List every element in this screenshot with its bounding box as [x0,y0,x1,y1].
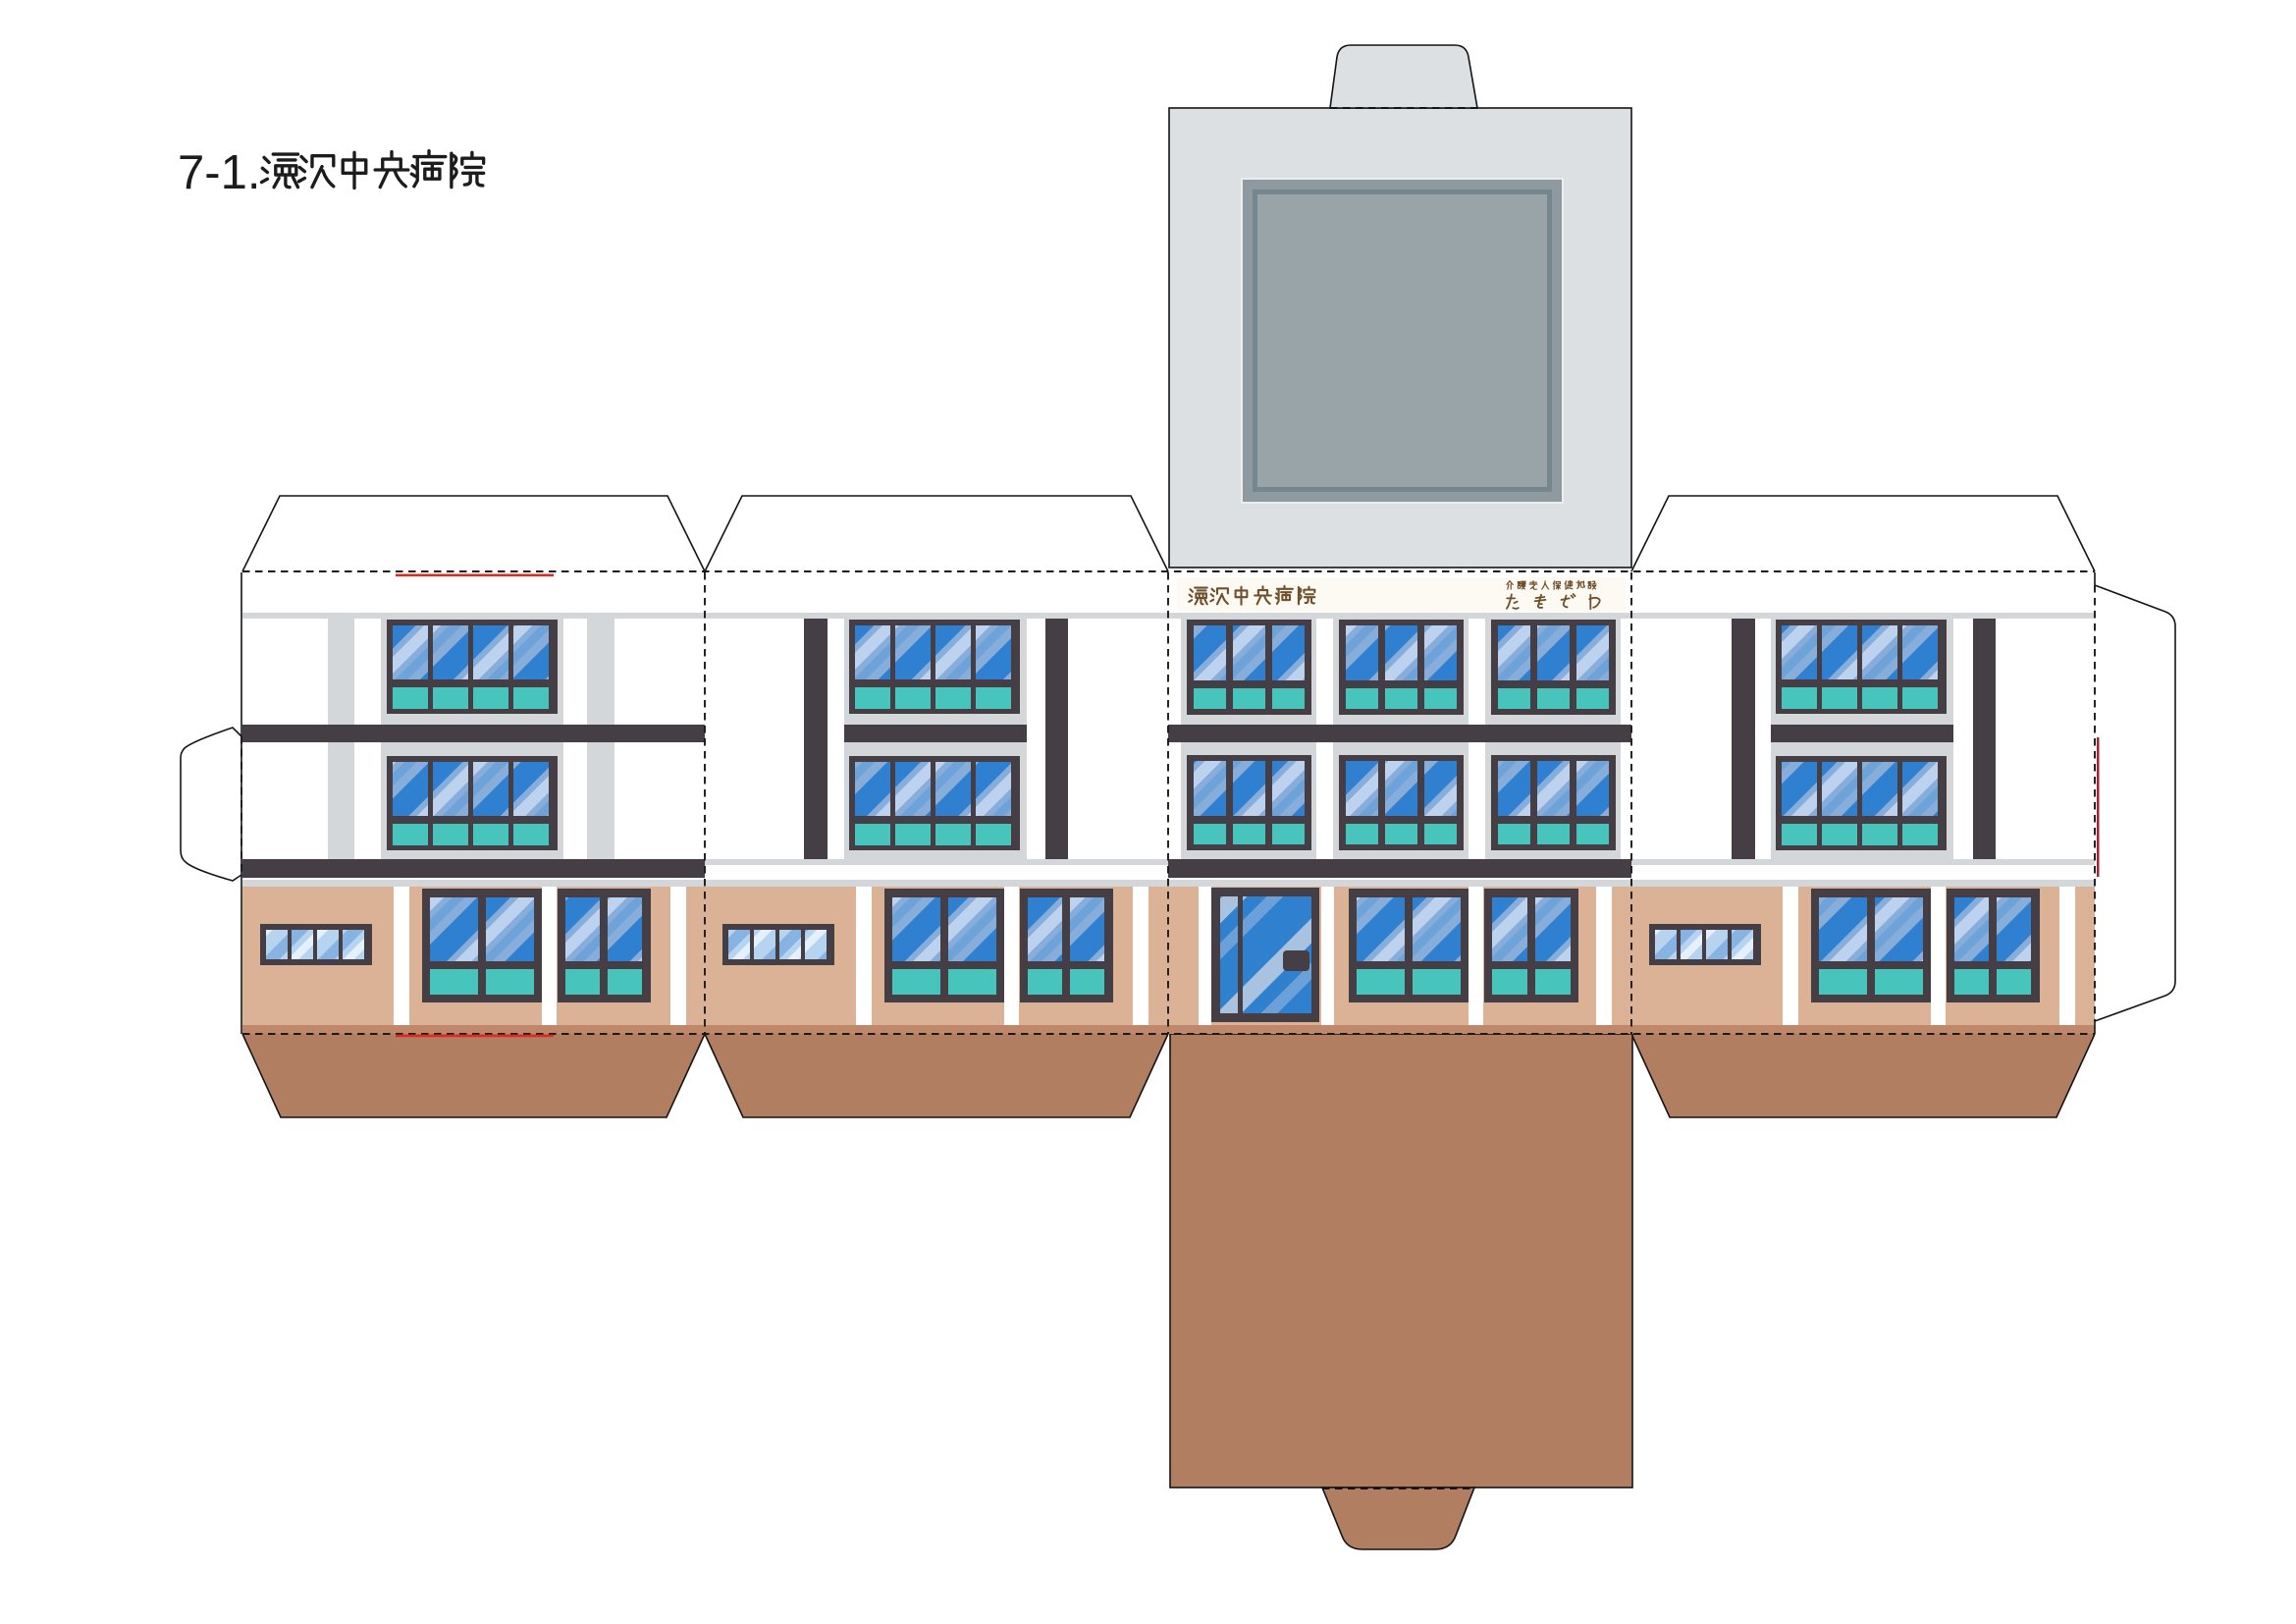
svg-text:7-1.: 7-1. [178,146,260,199]
